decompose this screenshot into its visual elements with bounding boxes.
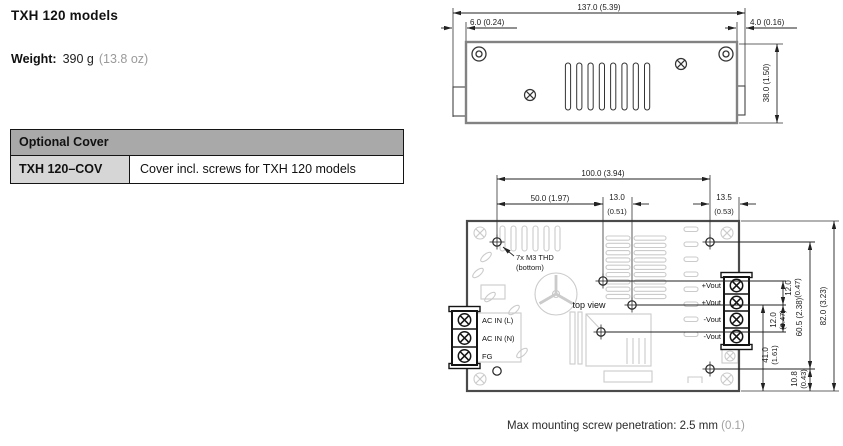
dim-50: 50.0 (1.97) xyxy=(531,194,570,203)
dim-height: 38.0 (1.50) xyxy=(762,63,771,102)
right-mounting-tab xyxy=(737,86,745,115)
output-terminal-block xyxy=(721,273,752,350)
input-terminal-block xyxy=(449,307,480,369)
terminal-label-vout3: -Vout xyxy=(703,315,721,324)
mounting-note-metric: Max mounting screw penetration: 2.5 mm xyxy=(507,420,718,432)
mounting-note-imperial: (0.1) xyxy=(721,420,745,432)
dim-12a-in: (0.47) xyxy=(793,278,802,298)
terminal-label-ac-n: AC IN (N) xyxy=(482,334,515,343)
dim-12b-in: (0.47) xyxy=(778,310,787,330)
terminal-label-vout1: +Vout xyxy=(702,281,722,290)
dim-12a-mm: 12.0 xyxy=(784,280,793,296)
thread-note-line2: (bottom) xyxy=(516,263,544,272)
dim-10-8-in: (0.43) xyxy=(799,369,808,389)
top-view-label: top view xyxy=(572,300,606,310)
dim-right-offset: 4.0 (0.16) xyxy=(750,18,785,27)
terminal-label-ac-l: AC IN (L) xyxy=(482,316,514,325)
terminal-label-vout2: +Vout xyxy=(702,298,722,307)
ghost-vent-grid xyxy=(606,236,666,299)
terminal-label-fg: FG xyxy=(482,352,493,361)
dim-left-offset: 6.0 (0.24) xyxy=(470,18,505,27)
dim-13-5-mm: 13.5 xyxy=(716,193,732,202)
chassis-body xyxy=(466,42,737,123)
mounting-note: Max mounting screw penetration: 2.5 mm (… xyxy=(507,420,745,432)
top-view-drawing: 100.0 (3.94) 50.0 (1.97) 13.0 (0.51) 13.… xyxy=(449,169,839,391)
terminal-screw-icon xyxy=(458,314,470,362)
terminal-label-vout4: -Vout xyxy=(703,332,721,341)
datasheet-page: TXH 120 models Weight:390 g(13.8 oz) Opt… xyxy=(0,0,843,446)
dim-12b-mm: 12.0 xyxy=(769,312,778,328)
thread-note-line1: 7x M3 THD xyxy=(516,253,554,262)
side-view-drawing: 137.0 (5.39) 6.0 (0.24) 4.0 (0.16) 38.0 … xyxy=(441,3,797,123)
technical-drawings: 137.0 (5.39) 6.0 (0.24) 4.0 (0.16) 38.0 … xyxy=(0,0,843,446)
dim-13-5-in: (0.53) xyxy=(714,207,734,216)
left-mounting-tab xyxy=(453,87,466,116)
dim-10-8-mm: 10.8 xyxy=(790,371,799,387)
dim-width-total: 137.0 (5.39) xyxy=(577,3,620,12)
dim-60-5: 60.5 (2.38) xyxy=(795,297,804,336)
dim-82: 82.0 (3.23) xyxy=(819,286,828,325)
dim-41-in: (1.61) xyxy=(770,345,779,365)
dim-13-in: (0.51) xyxy=(607,207,627,216)
dim-13-mm: 13.0 xyxy=(609,193,625,202)
dim-41-mm: 41.0 xyxy=(761,347,770,363)
dim-100: 100.0 (3.94) xyxy=(581,169,624,178)
